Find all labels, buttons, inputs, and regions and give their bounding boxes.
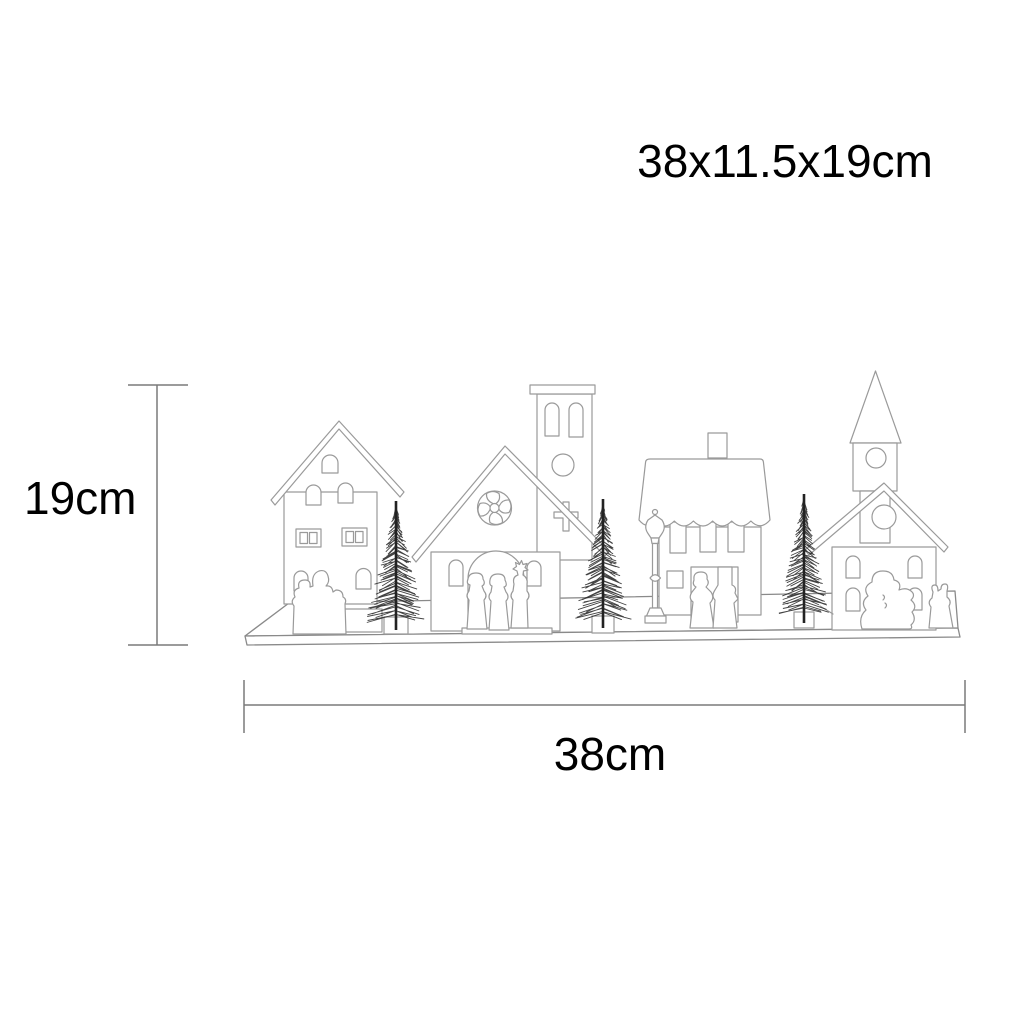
belfry-window	[866, 448, 886, 468]
height-dimension-line	[128, 385, 188, 645]
bell-tower-window	[569, 403, 583, 437]
width-dimension-line	[244, 680, 965, 733]
chimney	[708, 433, 727, 458]
small-window	[667, 571, 683, 588]
side-window	[527, 561, 541, 586]
village-illustration: 19cm 38cm 38x11.5x19cm	[0, 0, 1024, 1024]
height-dimension: 19cm	[24, 385, 188, 645]
bell-tower-cap	[530, 385, 595, 394]
scalloped-roof	[639, 459, 770, 526]
bell-tower-window	[545, 403, 559, 436]
post-ornament	[650, 575, 661, 582]
awning-window	[670, 522, 686, 553]
bell-tower-round-window	[552, 454, 574, 476]
product-dimension-diagram: 19cm 38cm 38x11.5x19cm	[0, 0, 1024, 1024]
chapel-window	[846, 556, 860, 578]
chapel-window	[846, 588, 860, 611]
gable-window	[322, 455, 338, 473]
chapel-window	[908, 556, 922, 578]
lamp-base-plate	[645, 616, 666, 623]
upper-window	[306, 485, 321, 505]
ground-arch-window	[356, 569, 371, 590]
spire	[850, 371, 901, 443]
width-dimension: 38cm	[244, 680, 965, 780]
side-window	[449, 560, 463, 586]
lamp-base	[647, 608, 665, 616]
size-label: 38x11.5x19cm	[637, 135, 933, 187]
upper-window	[338, 483, 353, 503]
chapel-gable-window	[872, 505, 896, 529]
lamp-collar	[651, 538, 659, 544]
height-label: 19cm	[24, 472, 136, 524]
width-label: 38cm	[554, 728, 666, 780]
rose-window-hub	[490, 504, 499, 513]
lamppost-finial	[653, 510, 658, 515]
